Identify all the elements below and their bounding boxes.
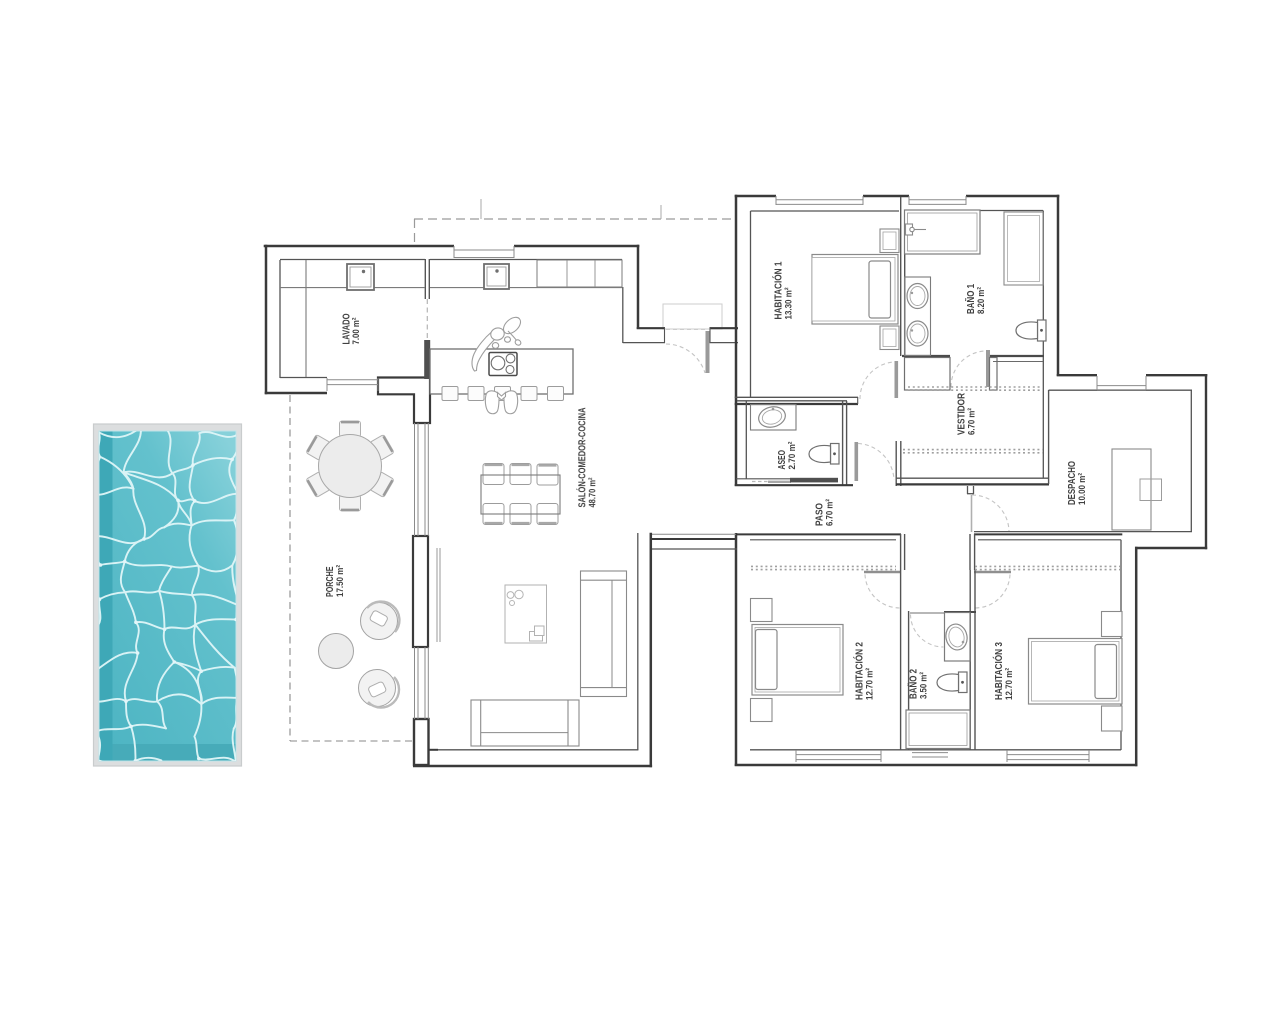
svg-text:48.70 m²: 48.70 m² [587, 478, 598, 508]
svg-text:8.20 m²: 8.20 m² [976, 287, 987, 314]
svg-text:12.70 m²: 12.70 m² [864, 668, 875, 700]
svg-text:6.70 m²: 6.70 m² [966, 408, 977, 435]
svg-text:12.70 m²: 12.70 m² [1004, 668, 1015, 700]
svg-text:17.50 m²: 17.50 m² [335, 565, 346, 597]
svg-text:13.30 m²: 13.30 m² [783, 288, 794, 320]
svg-text:3.50 m²: 3.50 m² [918, 672, 929, 699]
svg-text:2.70 m²: 2.70 m² [787, 442, 798, 470]
svg-text:6.70 m²: 6.70 m² [824, 499, 835, 526]
svg-text:7.00 m²: 7.00 m² [351, 318, 362, 345]
svg-text:10.00 m²: 10.00 m² [1077, 473, 1088, 505]
